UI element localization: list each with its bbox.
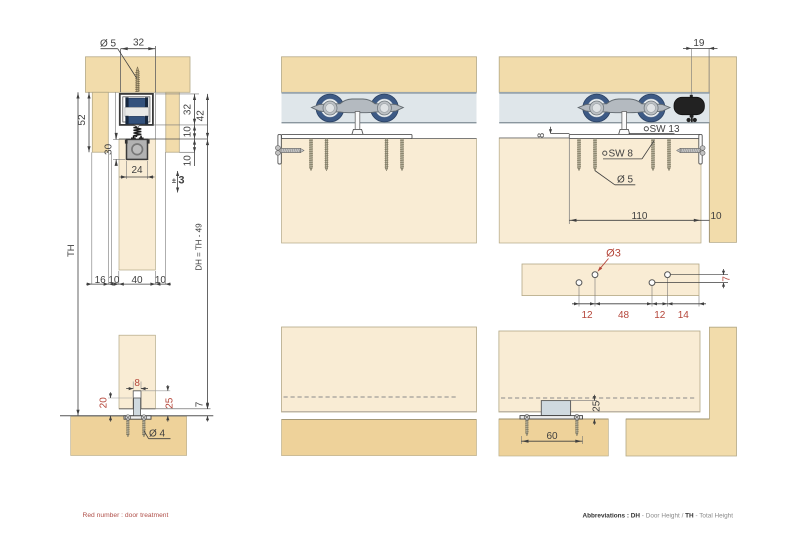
svg-text:30: 30 — [104, 143, 115, 155]
svg-text:10: 10 — [182, 155, 193, 167]
svg-text:25: 25 — [591, 400, 602, 412]
svg-text:40: 40 — [131, 275, 143, 286]
svg-text:Ø 5: Ø 5 — [100, 39, 117, 50]
svg-text:42: 42 — [196, 110, 207, 122]
svg-text:SW 8: SW 8 — [609, 149, 634, 160]
svg-text:Ø 4: Ø 4 — [149, 429, 166, 440]
svg-text:3: 3 — [178, 175, 184, 187]
svg-text:16: 16 — [95, 275, 107, 286]
svg-text:Red number : door treatment: Red number : door treatment — [83, 512, 169, 519]
svg-text:48: 48 — [618, 310, 630, 321]
svg-text:25: 25 — [164, 397, 175, 409]
svg-text:Ø 5: Ø 5 — [617, 175, 634, 186]
svg-text:Ø3: Ø3 — [606, 248, 621, 260]
svg-text:12: 12 — [654, 310, 666, 321]
svg-text:7: 7 — [722, 276, 733, 282]
svg-text:±: ± — [172, 176, 176, 185]
svg-text:110: 110 — [632, 211, 648, 222]
svg-text:20: 20 — [99, 397, 110, 409]
svg-text:DH = TH - 49: DH = TH - 49 — [195, 223, 204, 271]
svg-text:14: 14 — [678, 310, 690, 321]
svg-text:32: 32 — [182, 104, 193, 116]
svg-text:24: 24 — [131, 165, 143, 176]
svg-text:10: 10 — [108, 275, 120, 286]
svg-text:12: 12 — [581, 310, 593, 321]
svg-text:10: 10 — [710, 211, 722, 222]
svg-text:TH: TH — [66, 244, 77, 257]
svg-text:10: 10 — [155, 275, 167, 286]
svg-text:52: 52 — [77, 114, 88, 126]
svg-text:10: 10 — [182, 126, 193, 138]
svg-text:60: 60 — [546, 431, 558, 442]
svg-text:32: 32 — [133, 38, 145, 49]
svg-text:Abbreviations : DH - Door Heig: Abbreviations : DH - Door Height / TH - … — [583, 513, 734, 520]
svg-text:8: 8 — [536, 133, 546, 138]
svg-text:8: 8 — [134, 378, 140, 389]
svg-text:7: 7 — [195, 401, 206, 407]
svg-text:19: 19 — [693, 38, 705, 49]
